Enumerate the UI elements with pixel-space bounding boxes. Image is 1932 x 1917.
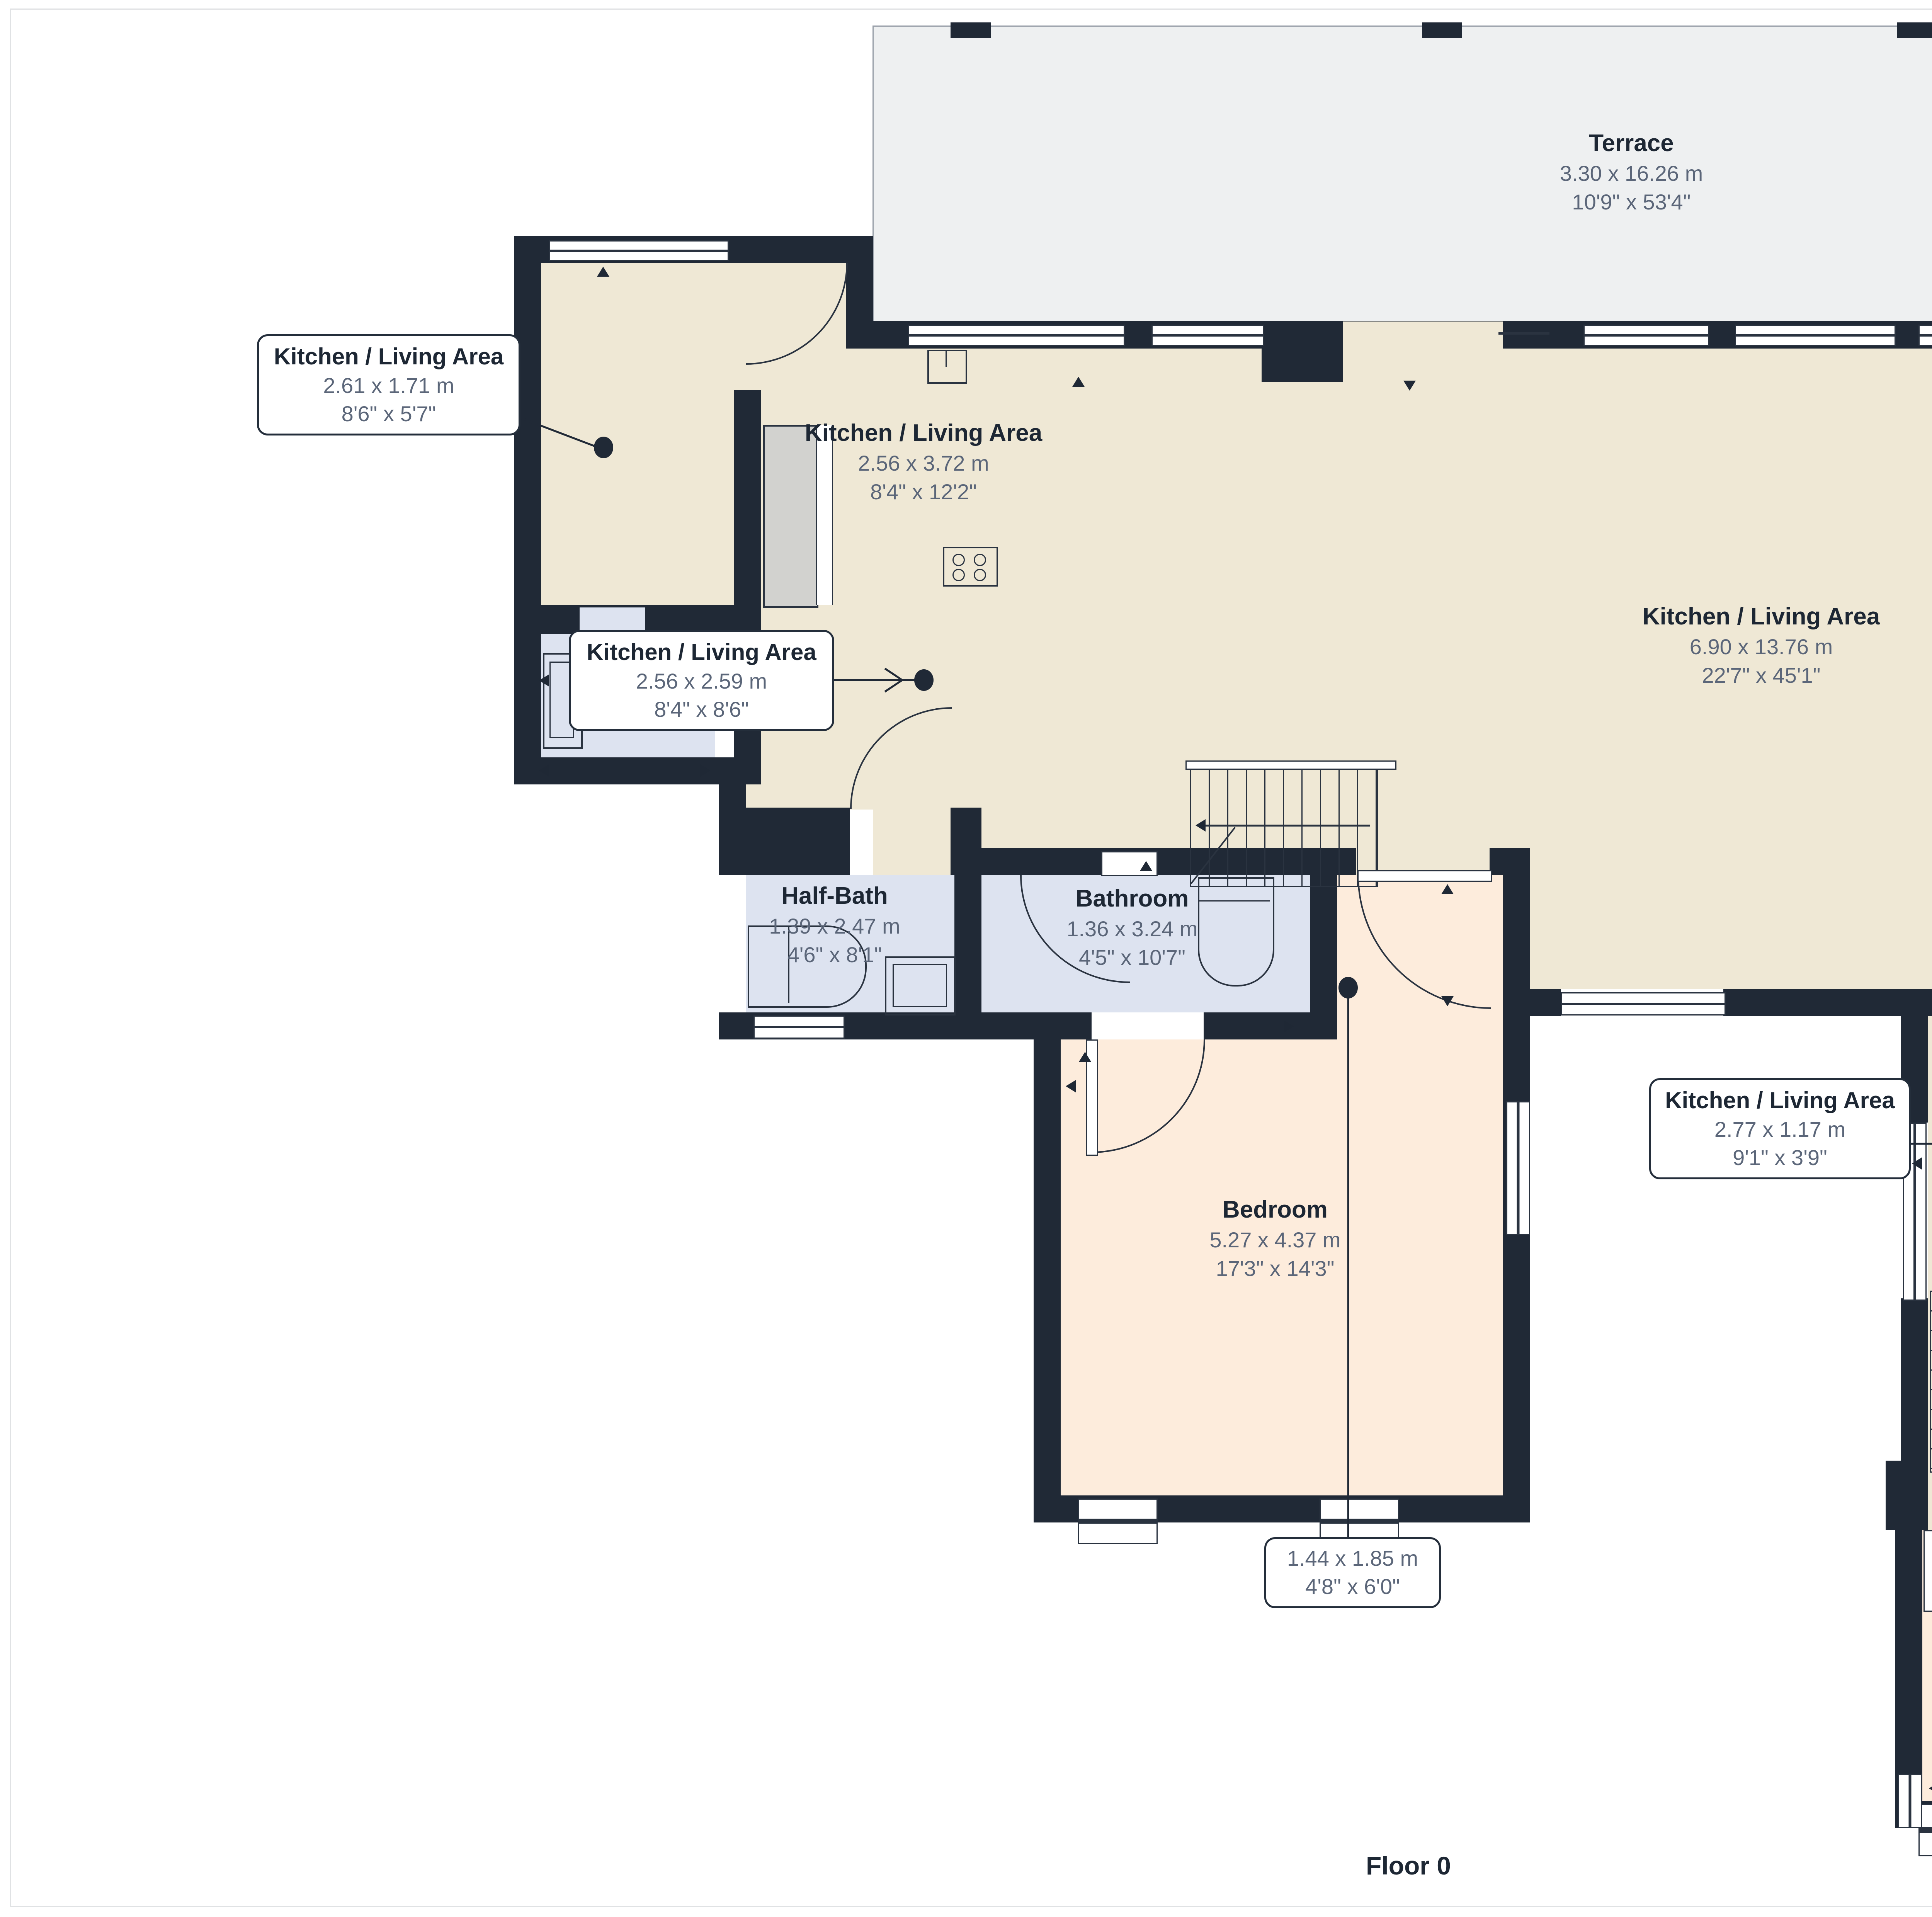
floor-title: Floor 0 [1366,1851,1451,1880]
room-label-kitchen-nook: Kitchen / Living Area 2.56 x 3.72 m 8'4"… [805,417,1042,506]
room-dim-imperial: 4'5" x 10'7" [1066,943,1197,972]
callout-dim-imperial: 8'4" x 8'6" [573,696,830,724]
callout-dim-imperial: 8'6" x 5'7" [261,400,516,428]
callout-dim-metric: 1.44 x 1.85 m [1269,1544,1437,1573]
callout-dim-metric: 2.61 x 1.71 m [261,372,516,400]
room-dim-imperial: 4'6" x 8'1" [769,941,900,969]
room-dim-metric: 2.56 x 3.72 m [805,449,1042,478]
callout-dim-metric: 2.56 x 2.59 m [573,667,830,696]
room-dim-imperial: 10'9" x 53'4" [1560,188,1703,216]
room-dim-metric: 3.30 x 16.26 m [1560,159,1703,188]
room-label-terrace: Terrace 3.30 x 16.26 m 10'9" x 53'4" [1560,128,1703,216]
room-label-kitchen-main: Kitchen / Living Area 6.90 x 13.76 m 22'… [1643,601,1880,690]
room-dim-imperial: 17'3" x 14'3" [1209,1254,1340,1283]
room-name: Bedroom [1209,1194,1340,1226]
room-label-bathroom-1: Bathroom 1.36 x 3.24 m 4'5" x 10'7" [1066,883,1197,972]
room-dim-metric: 5.27 x 4.37 m [1209,1226,1340,1254]
callout-kitchen-c: Kitchen / Living Area 2.77 x 1.17 m 9'1"… [1649,1078,1911,1179]
room-name: Bathroom [1066,883,1197,915]
callout-kitchen-a: Kitchen / Living Area 2.61 x 1.71 m 8'6"… [257,334,520,435]
callout-kitchen-b: Kitchen / Living Area 2.56 x 2.59 m 8'4"… [569,630,834,731]
floorplan-canvas: Terrace 3.30 x 16.26 m 10'9" x 53'4" Kit… [0,0,1932,1917]
callout-name: Kitchen / Living Area [573,637,830,667]
leader-lines [0,0,1932,1917]
room-dim-imperial: 22'7" x 45'1" [1643,661,1880,690]
room-label-half-bath-2: Half-Bath 1.39 x 2.47 m 4'6" x 8'1" [769,880,900,969]
room-label-bedroom-1: Bedroom 5.27 x 4.37 m 17'3" x 14'3" [1209,1194,1340,1283]
leader-dot-icon [1338,977,1358,998]
leader-dot-icon [594,437,613,458]
callout-closet: 1.44 x 1.85 m 4'8" x 6'0" [1264,1537,1441,1608]
room-name: Half-Bath [769,880,900,912]
room-dim-imperial: 8'4" x 12'2" [805,478,1042,506]
room-name: Kitchen / Living Area [805,417,1042,449]
leader-dot-icon [914,669,934,691]
callout-dim-imperial: 9'1" x 3'9" [1653,1144,1906,1172]
callout-name: Kitchen / Living Area [1653,1085,1906,1116]
callout-dim-imperial: 4'8" x 6'0" [1269,1573,1437,1601]
room-dim-metric: 1.36 x 3.24 m [1066,915,1197,943]
callout-dim-metric: 2.77 x 1.17 m [1653,1116,1906,1144]
room-dim-metric: 1.39 x 2.47 m [769,912,900,941]
room-name: Terrace [1560,128,1703,159]
room-name: Kitchen / Living Area [1643,601,1880,633]
room-dim-metric: 6.90 x 13.76 m [1643,633,1880,661]
callout-name: Kitchen / Living Area [261,342,516,372]
